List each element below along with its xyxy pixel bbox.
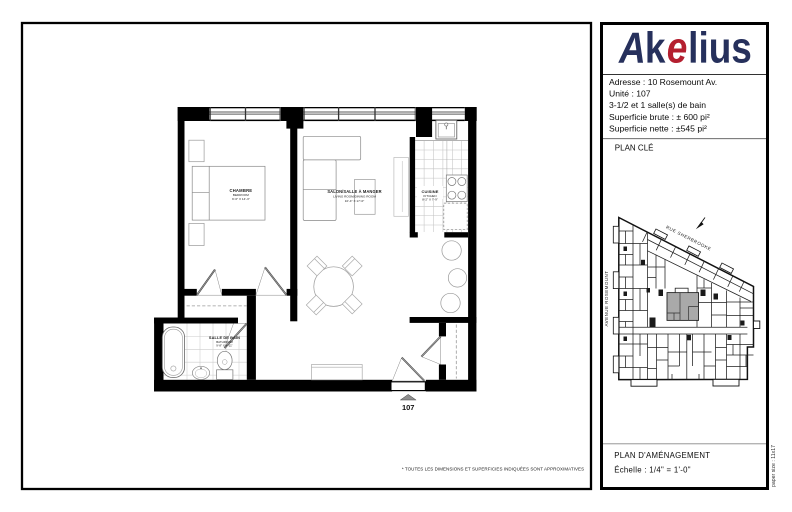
svg-text:Superficie brute : ± 600 pi²: Superficie brute : ± 600 pi² bbox=[609, 112, 710, 122]
svg-text:Échelle : 1/4" = 1'-0": Échelle : 1/4" = 1'-0" bbox=[614, 466, 691, 475]
svg-text:PLAN CLÉ: PLAN CLÉ bbox=[615, 144, 654, 153]
svg-text:paper size : 11x17: paper size : 11x17 bbox=[771, 445, 777, 487]
svg-text:e: e bbox=[667, 23, 688, 73]
svg-text:3-1/2 et 1 salle(s) de bain: 3-1/2 et 1 salle(s) de bain bbox=[609, 100, 706, 110]
svg-text:9'-8" X 4'-11": 9'-8" X 4'-11" bbox=[216, 344, 232, 348]
svg-text:Superficie nette : ±545 pi²: Superficie nette : ±545 pi² bbox=[609, 123, 707, 133]
svg-text:lius: lius bbox=[688, 23, 752, 73]
svg-text:k: k bbox=[645, 23, 666, 73]
svg-text:A: A bbox=[618, 23, 646, 73]
svg-text:PLAN D'AMÉNAGEMENT: PLAN D'AMÉNAGEMENT bbox=[614, 451, 710, 460]
svg-text:Adresse : 10 Rosemount Av.: Adresse : 10 Rosemount Av. bbox=[609, 77, 717, 87]
svg-text:10'-4" X 17'-0": 10'-4" X 17'-0" bbox=[345, 199, 365, 203]
svg-text:* TOUTES LES DIMENSIONS ET SUP: * TOUTES LES DIMENSIONS ET SUPERFICIES I… bbox=[402, 466, 584, 472]
svg-text:9'-0" X 14'-3": 9'-0" X 14'-3" bbox=[232, 197, 250, 201]
svg-text:107: 107 bbox=[402, 403, 415, 412]
svg-text:8'-2" X 7'-9": 8'-2" X 7'-9" bbox=[422, 198, 438, 202]
svg-text:SALON/SALLE À MANGER: SALON/SALLE À MANGER bbox=[327, 189, 381, 194]
svg-text:AVENUE ROSEMOUNT: AVENUE ROSEMOUNT bbox=[604, 271, 609, 327]
svg-text:Unité : 107: Unité : 107 bbox=[609, 89, 651, 99]
